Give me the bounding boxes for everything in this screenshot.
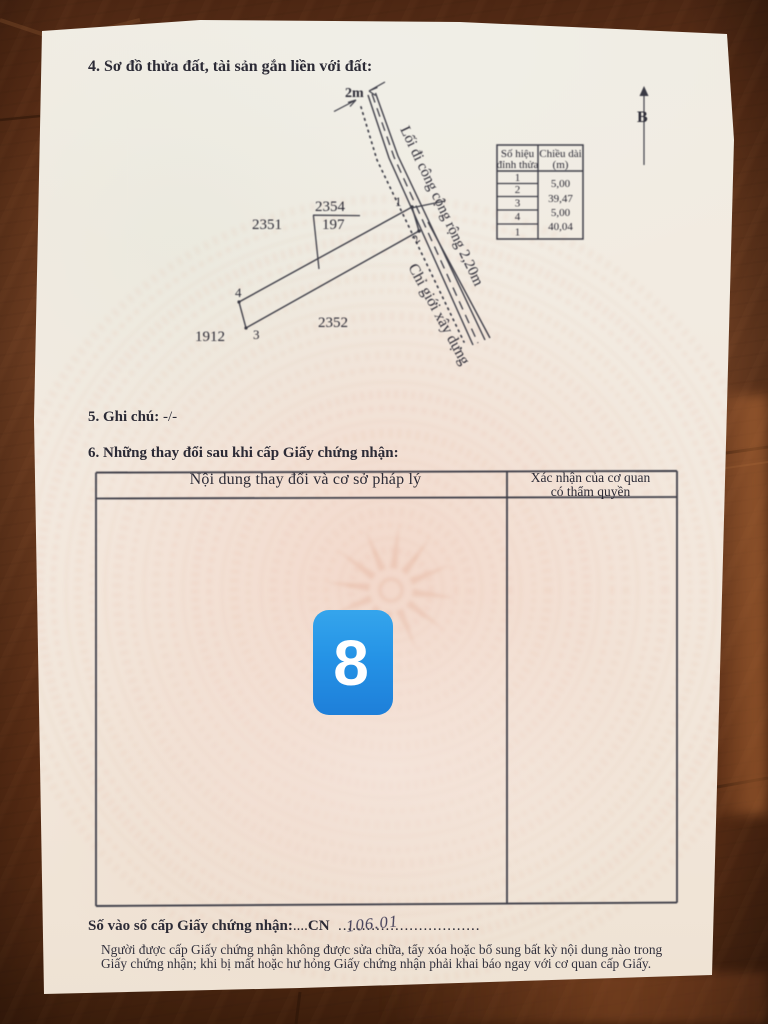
svg-text:39,47: 39,47 <box>548 193 573 205</box>
svg-text:2352: 2352 <box>318 315 348 331</box>
svg-text:Chỉ giới xây dựng: Chỉ giới xây dựng <box>404 261 473 368</box>
svg-text:2351: 2351 <box>252 217 282 233</box>
svg-text:đỉnh thửa: đỉnh thửa <box>497 159 539 171</box>
svg-text:1: 1 <box>515 227 521 239</box>
svg-text:197: 197 <box>322 217 345 233</box>
svg-text:2354: 2354 <box>315 199 346 215</box>
svg-text:2: 2 <box>409 232 422 247</box>
svg-text:B: B <box>637 109 648 126</box>
svg-text:Lối đi công cộng rộng 2,20m: Lối đi công cộng rộng 2,20m <box>396 124 486 289</box>
svg-text:5,00: 5,00 <box>551 207 571 219</box>
svg-text:(m): (m) <box>553 159 569 171</box>
svg-text:2m: 2m <box>345 86 364 101</box>
svg-text:1912: 1912 <box>195 329 225 345</box>
svg-text:5,00: 5,00 <box>551 178 571 190</box>
svg-text:4: 4 <box>235 285 242 300</box>
svg-text:3: 3 <box>253 327 260 342</box>
svg-text:2: 2 <box>515 184 521 196</box>
svg-text:40,04: 40,04 <box>548 221 573 233</box>
svg-text:1: 1 <box>395 194 402 209</box>
svg-text:1: 1 <box>515 172 521 184</box>
svg-text:4: 4 <box>515 211 521 223</box>
svg-text:3: 3 <box>515 198 521 210</box>
